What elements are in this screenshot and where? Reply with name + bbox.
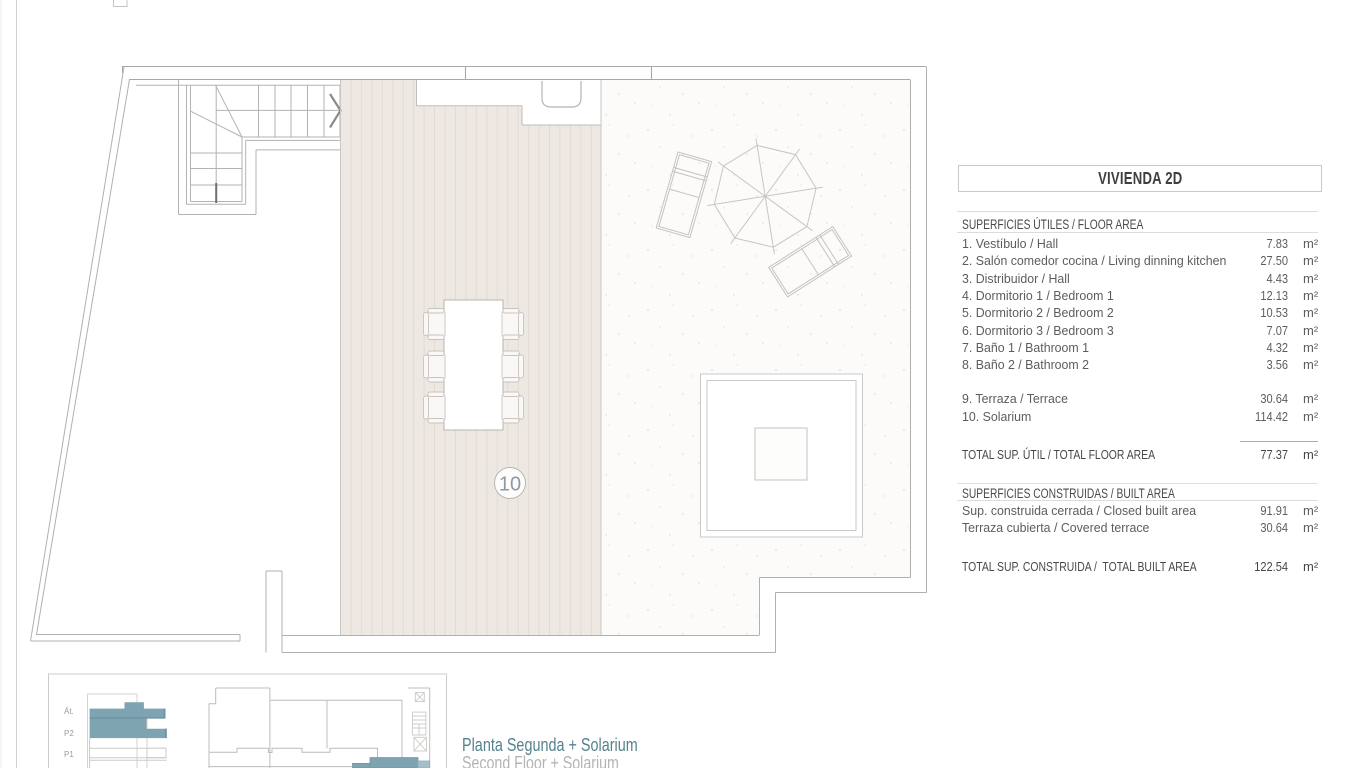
svg-text:10: 10 (499, 474, 521, 496)
